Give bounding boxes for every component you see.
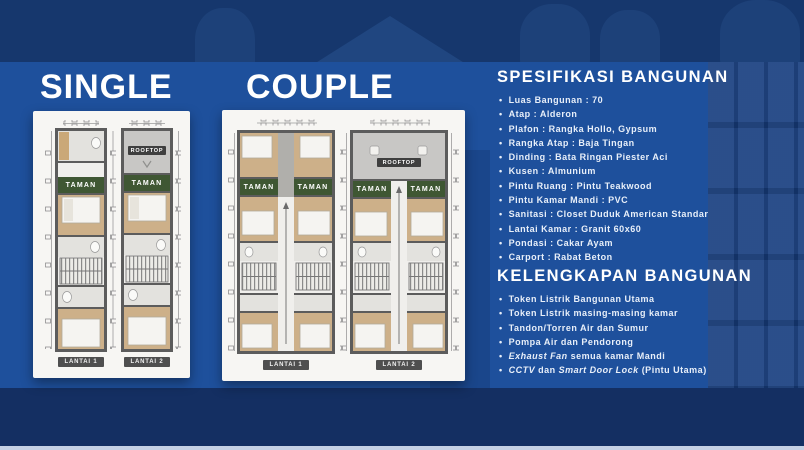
kelengkapan-list: Token Listrik Bangunan Utama Token Listr… [499, 295, 797, 376]
spec-item: Atap : Alderon [499, 110, 797, 119]
kelengkapan-item: Exhaust Fan semua kamar Mandi [499, 352, 797, 361]
floor-label: LANTAI 2 [376, 360, 422, 370]
spec-item: Kusen : Almunium [499, 167, 797, 176]
flyer-canvas: SINGLE COUPLE [0, 0, 804, 450]
background-top-band [0, 0, 804, 62]
spec-item: Carport : Rabat Beton [499, 253, 797, 262]
couple-floorplans-graphic [222, 110, 465, 381]
taman-badge: TAMAN [294, 179, 332, 195]
spesifikasi-list: Luas Bangunan : 70 Atap : Alderon Plafon… [499, 96, 797, 263]
spesifikasi-heading: SPESIFIKASI BANGUNAN [497, 68, 797, 87]
background-bottom-band [0, 388, 804, 450]
rooftop-badge: ROOFTOP [128, 146, 166, 155]
couple-floorplan-card: TAMAN TAMAN TAMAN TAMAN ROOFTOP LANTAI 1… [222, 110, 465, 381]
spec-item: Luas Bangunan : 70 [499, 96, 797, 105]
spec-item: Pintu Ruang : Pintu Teakwood [499, 182, 797, 191]
kelengkapan-item: Tandon/Torren Air dan Sumur [499, 324, 797, 333]
kelengkapan-heading: KELENGKAPAN BANGUNAN [497, 267, 797, 286]
floor-label: LANTAI 1 [58, 357, 104, 367]
kelengkapan-section: KELENGKAPAN BANGUNAN Token Listrik Bangu… [497, 267, 797, 381]
tree-silhouette [720, 0, 800, 62]
spec-item: Pintu Kamar Mandi : PVC [499, 196, 797, 205]
floor-label: LANTAI 1 [263, 360, 309, 370]
kelengkapan-item: CCTV dan Smart Door Lock (Pintu Utama) [499, 366, 797, 375]
spec-item: Lantai Kamar : Granit 60x60 [499, 225, 797, 234]
spec-item: Dinding : Bata Ringan Piester Aci [499, 153, 797, 162]
single-title: SINGLE [40, 68, 173, 107]
bottom-divider-line [0, 446, 804, 450]
couple-title: COUPLE [246, 68, 394, 107]
spec-item: Plafon : Rangka Hollo, Gypsum [499, 125, 797, 134]
tree-silhouette [195, 8, 255, 62]
rooftop-badge: ROOFTOP [377, 158, 421, 167]
taman-badge: TAMAN [58, 177, 104, 193]
kelengkapan-item: Token Listrik Bangunan Utama [499, 295, 797, 304]
tree-silhouette [520, 4, 590, 62]
spec-item: Rangka Atap : Baja Tingan [499, 139, 797, 148]
single-floorplan-card: TAMAN TAMAN ROOFTOP LANTAI 1 LANTAI 2 [33, 111, 190, 378]
taman-badge: TAMAN [353, 181, 391, 197]
floor-label: LANTAI 2 [124, 357, 170, 367]
kelengkapan-item: Token Listrik masing-masing kamar [499, 309, 797, 318]
house-roof-silhouette [295, 16, 485, 62]
taman-badge: TAMAN [407, 181, 445, 197]
spec-item: Sanitasi : Closet Duduk American Standar [499, 210, 797, 219]
taman-badge: TAMAN [124, 175, 170, 191]
taman-badge: TAMAN [240, 179, 278, 195]
single-floorplans-graphic [33, 111, 190, 378]
tree-silhouette [600, 10, 660, 62]
spec-item: Pondasi : Cakar Ayam [499, 239, 797, 248]
kelengkapan-item: Pompa Air dan Pendorong [499, 338, 797, 347]
spesifikasi-section: SPESIFIKASI BANGUNAN Luas Bangunan : 70 … [497, 68, 797, 268]
